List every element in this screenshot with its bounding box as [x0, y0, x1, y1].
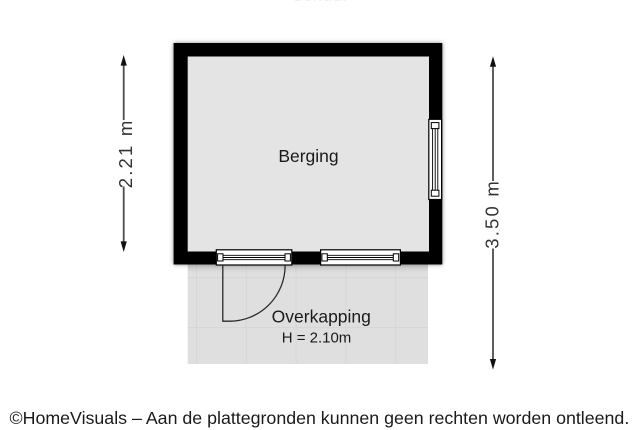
svg-text:3.50 m: 3.50 m: [481, 179, 502, 249]
svg-text:H = 2.10m: H = 2.10m: [282, 329, 352, 346]
svg-text:Overkapping: Overkapping: [272, 306, 371, 326]
svg-text:2.21 m: 2.21 m: [115, 119, 136, 189]
svg-text:Berging: Berging: [278, 146, 338, 166]
